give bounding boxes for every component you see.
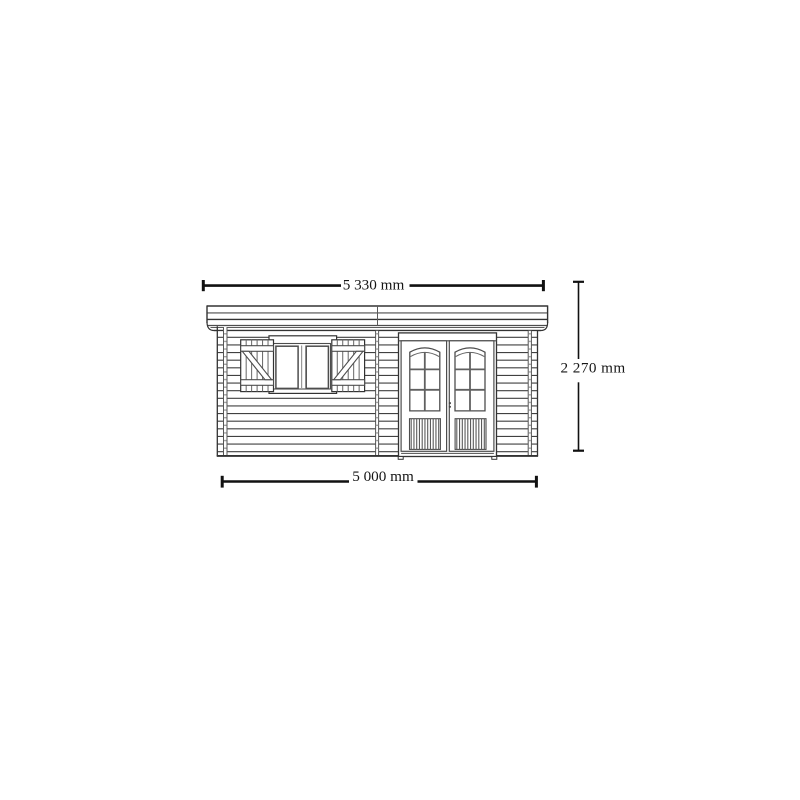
svg-text:2 270 mm: 2 270 mm: [561, 360, 626, 377]
svg-text:5 000 mm: 5 000 mm: [352, 468, 414, 485]
svg-text:5 330 mm: 5 330 mm: [343, 277, 405, 294]
